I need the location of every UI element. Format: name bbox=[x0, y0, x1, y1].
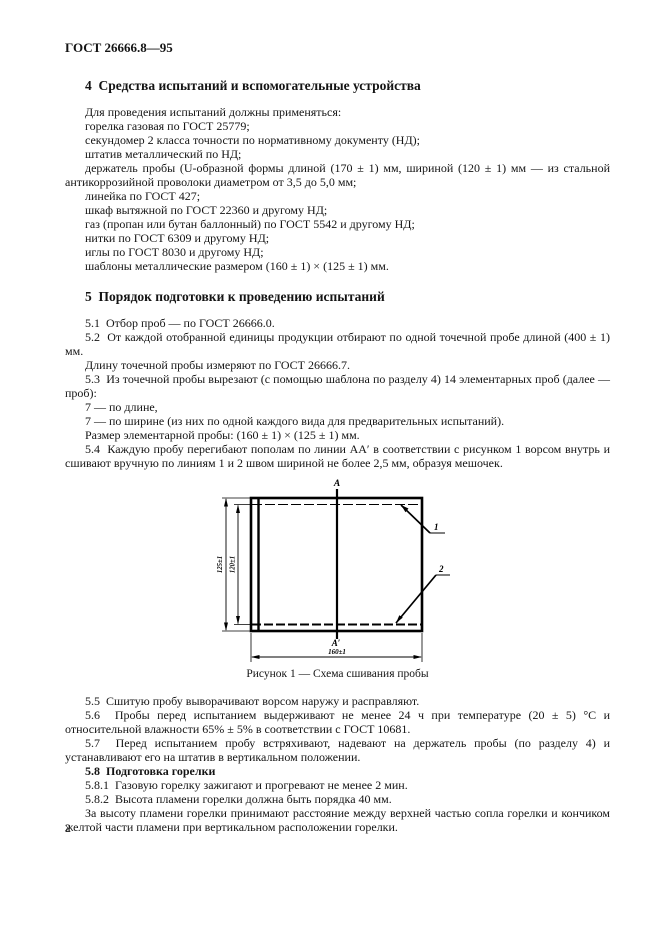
sewing-scheme-diagram: 125±1 120±1 160±1 A A′ 1 2 bbox=[212, 476, 464, 668]
dim-width-label: 160±1 bbox=[328, 648, 346, 656]
equipment-item: линейка по ГОСТ 427; bbox=[65, 189, 610, 203]
section-4-heading: 4 Средства испытаний и вспомогательные у… bbox=[65, 77, 610, 94]
dim-height-inner-label: 120±1 bbox=[229, 556, 236, 573]
equipment-item: нитки по ГОСТ 6309 и другому НД; bbox=[65, 231, 610, 245]
equipment-item: горелка газовая по ГОСТ 25779; bbox=[65, 119, 610, 133]
paragraph-5-3-length: 7 — по длине, bbox=[65, 400, 610, 414]
point-a-prime-label: A′ bbox=[330, 638, 340, 648]
section-5-heading: 5 Порядок подготовки к проведению испыта… bbox=[65, 288, 610, 305]
paragraph-5-8-note: За высоту пламени горелки принимают расс… bbox=[65, 806, 610, 834]
paragraph-5-2a: Длину точечной пробы измеряют по ГОСТ 26… bbox=[65, 358, 610, 372]
doc-header: ГОСТ 26666.8—95 bbox=[65, 40, 610, 55]
section-4-intro: Для проведения испытаний должны применят… bbox=[65, 105, 610, 119]
equipment-item: шкаф вытяжной по ГОСТ 22360 и другому НД… bbox=[65, 203, 610, 217]
equipment-item: шаблоны металлические размером (160 ± 1)… bbox=[65, 259, 610, 273]
paragraph-5-5: 5.5 Сшитую пробу выворачивают ворсом нар… bbox=[65, 694, 610, 708]
dim-height-outer-label: 125±1 bbox=[217, 556, 224, 573]
paragraph-5-1: 5.1 Отбор проб — по ГОСТ 26666.0. bbox=[65, 316, 610, 330]
figure-caption: Рисунок 1 — Схема сшивания пробы bbox=[65, 668, 610, 681]
paragraph-5-8-2: 5.8.2 Высота пламени горелки должна быть… bbox=[65, 792, 610, 806]
figure-1: 125±1 120±1 160±1 A A′ 1 2 bbox=[65, 476, 610, 668]
arrowhead bbox=[224, 498, 228, 507]
seam-2-label: 2 bbox=[438, 564, 444, 574]
leader-line-2 bbox=[396, 575, 436, 623]
paragraph-5-7: 5.7 Перед испытанием пробу встряхивают, … bbox=[65, 736, 610, 764]
arrowhead bbox=[251, 655, 260, 659]
document-page: ГОСТ 26666.8—95 4 Средства испытаний и в… bbox=[0, 0, 661, 936]
arrowhead bbox=[224, 623, 228, 632]
paragraph-5-3-width: 7 — по ширине (из них по одной каждого в… bbox=[65, 414, 610, 428]
paragraph-5-3: 5.3 Из точечной пробы вырезают (с помощь… bbox=[65, 372, 610, 400]
equipment-item: штатив металлический по НД; bbox=[65, 147, 610, 161]
page-number: 2 bbox=[65, 821, 71, 835]
equipment-item: иглы по ГОСТ 8030 и другому НД; bbox=[65, 245, 610, 259]
paragraph-5-8-heading: 5.8 Подготовка горелки bbox=[65, 764, 610, 778]
paragraph-5-4: 5.4 Каждую пробу перегибают пополам по л… bbox=[65, 442, 610, 470]
arrowhead bbox=[236, 505, 240, 514]
point-a-label: A bbox=[332, 479, 339, 489]
equipment-item: держатель пробы (U-образной формы длиной… bbox=[65, 161, 610, 189]
equipment-item: секундомер 2 класса точности по норматив… bbox=[65, 133, 610, 147]
seam-1-label: 1 bbox=[434, 522, 439, 532]
equipment-item: газ (пропан или бутан баллонный) по ГОСТ… bbox=[65, 217, 610, 231]
paragraph-5-2: 5.2 От каждой отобранной единицы продукц… bbox=[65, 330, 610, 358]
paragraph-5-3-size: Размер элементарной пробы: (160 ± 1) × (… bbox=[65, 428, 610, 442]
arrowhead bbox=[413, 655, 422, 659]
paragraph-5-8-1: 5.8.1 Газовую горелку зажигают и прогрев… bbox=[65, 778, 610, 792]
arrowhead bbox=[236, 616, 240, 625]
paragraph-5-6: 5.6 Пробы перед испытанием выдерживают н… bbox=[65, 708, 610, 736]
